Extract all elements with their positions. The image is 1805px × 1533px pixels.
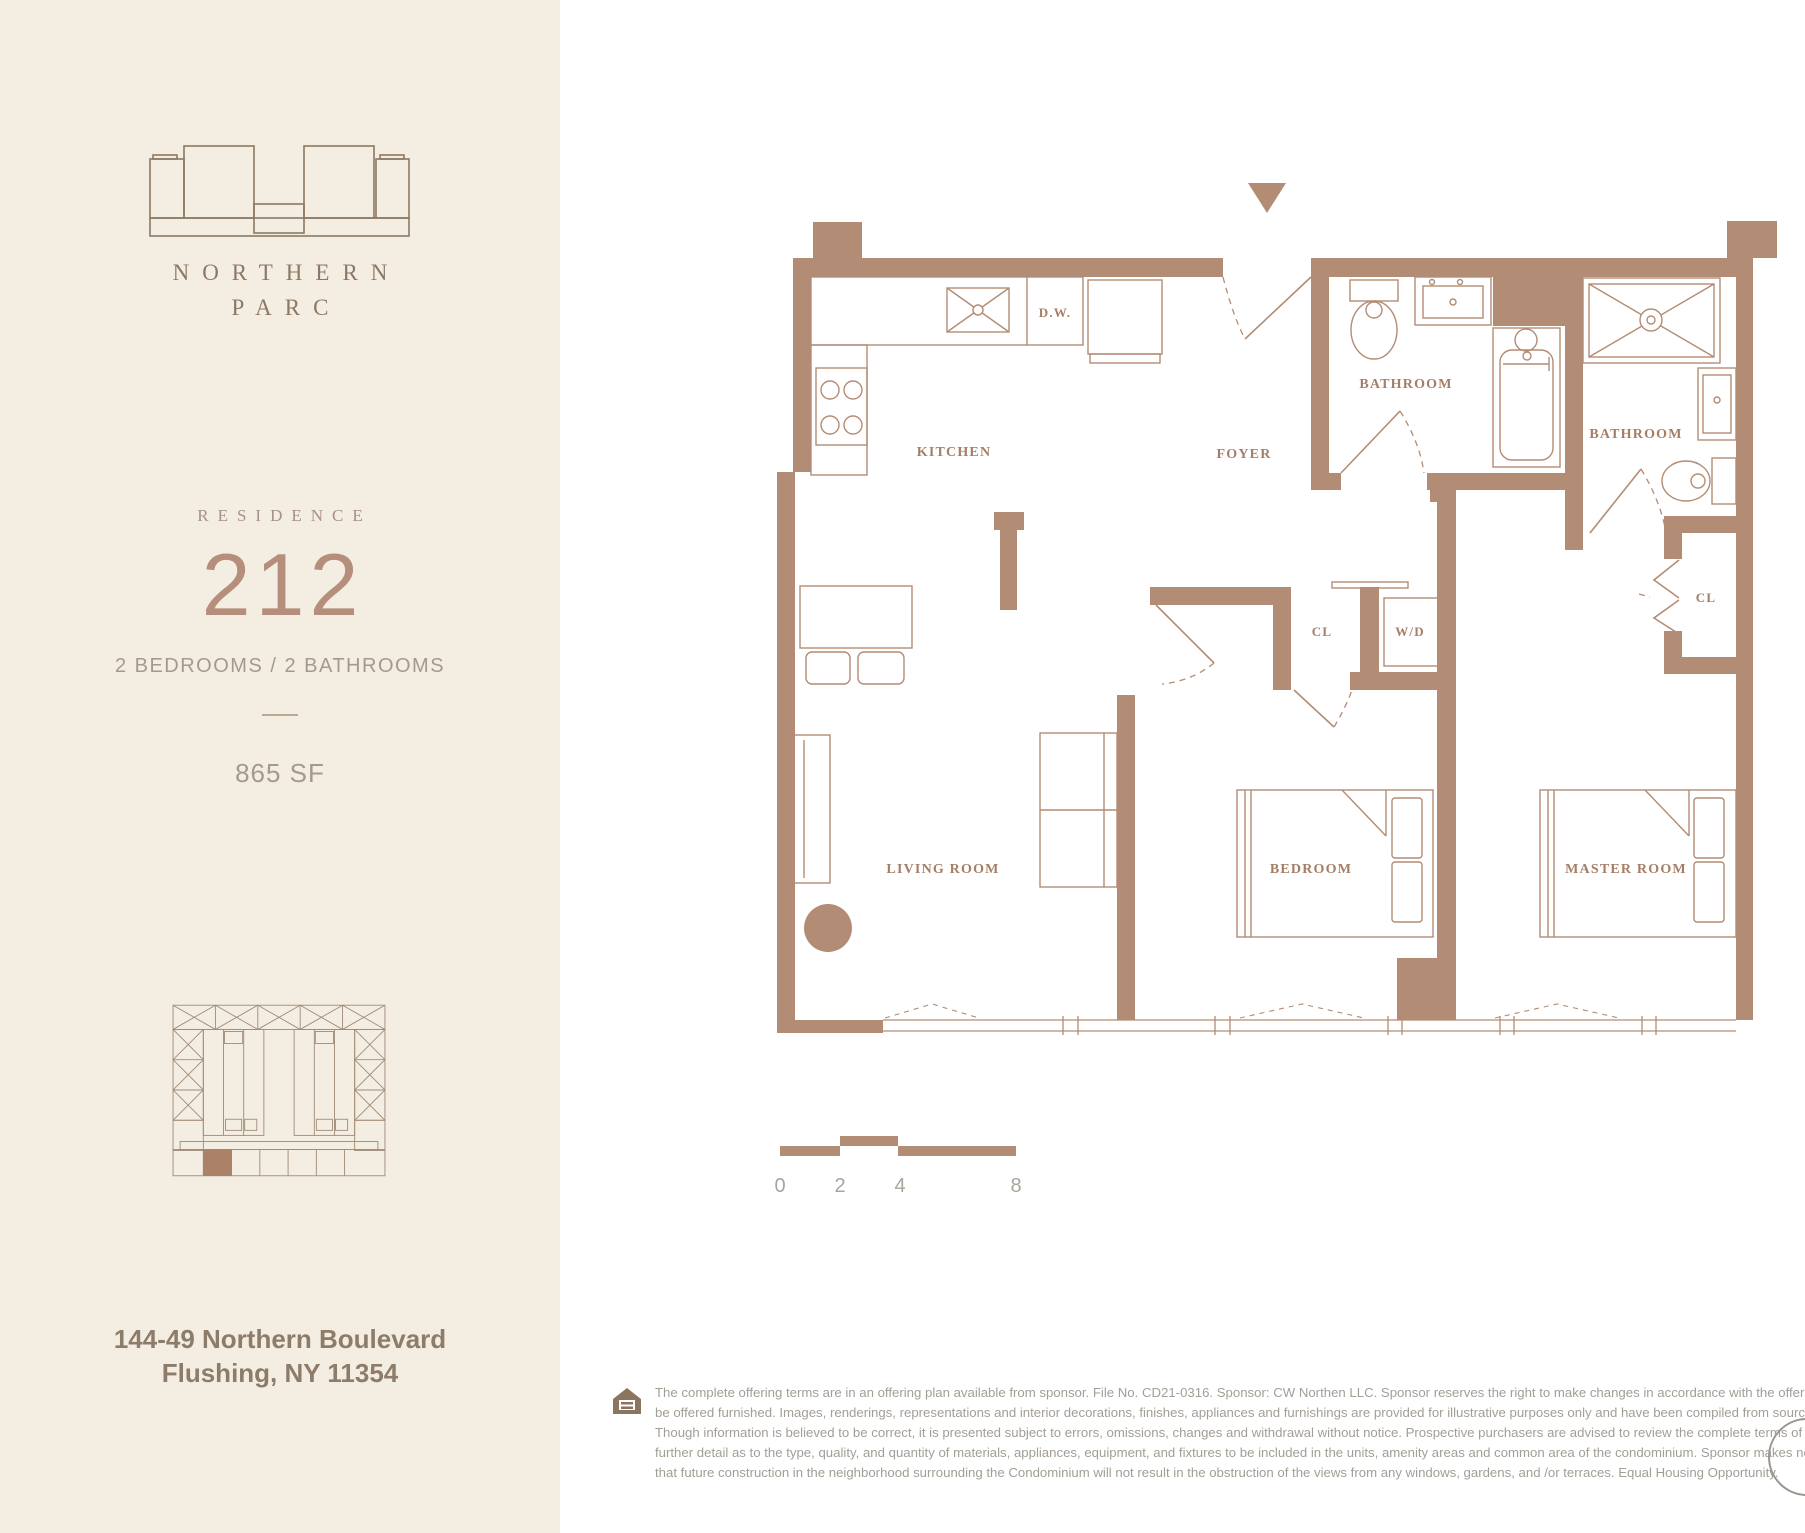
- floor-plan: KITCHEN FOYER BATHROOM BATHROOM LIVING R…: [660, 170, 1780, 1200]
- disclaimer-line: further detail as to the type, quality, …: [655, 1443, 1805, 1463]
- equal-housing-icon: [612, 1387, 642, 1415]
- scale-bar: 0 2 4 8: [774, 1136, 1021, 1197]
- column: [804, 904, 852, 952]
- disclaimer-line: Though information is believed to be cor…: [655, 1423, 1805, 1443]
- address-line2: Flushing, NY 11354: [0, 1356, 560, 1390]
- foyer-label: FOYER: [1217, 447, 1272, 462]
- floorplan-brochure-page: NORTHERN PARC RESIDENCE 212 2 BEDROOMS /…: [0, 0, 1805, 1533]
- residence-specs: 2 BEDROOMS / 2 BATHROOMS: [0, 655, 560, 678]
- offering-disclaimer: The complete offering terms are in an of…: [655, 1383, 1805, 1483]
- residence-label: RESIDENCE: [0, 506, 560, 526]
- entry-arrow-icon: [1248, 183, 1286, 213]
- bathroom2-label: BATHROOM: [1589, 427, 1682, 442]
- hall-closet-label: CL: [1312, 624, 1332, 639]
- master-room-label: MASTER ROOM: [1565, 862, 1687, 877]
- living-furniture: [794, 733, 1117, 952]
- address-line1: 144-49 Northern Boulevard: [0, 1322, 560, 1356]
- northern-parc-logo-icon: [147, 141, 413, 241]
- bathroom2-fixtures: [1583, 278, 1736, 504]
- washer-dryer-label: W/D: [1395, 624, 1425, 639]
- dishwasher-label: D.W.: [1039, 305, 1072, 320]
- disclaimer-line: The complete offering terms are in an of…: [655, 1383, 1805, 1403]
- door-swings: [1156, 277, 1679, 727]
- kitchen-label: KITCHEN: [917, 445, 992, 460]
- master-closet-label: CL: [1696, 590, 1716, 605]
- walls: [777, 221, 1777, 1033]
- scale-tick-8: 8: [1010, 1175, 1021, 1197]
- info-sidebar: NORTHERN PARC RESIDENCE 212 2 BEDROOMS /…: [0, 0, 560, 1533]
- building-address: 144-49 Northern Boulevard Flushing, NY 1…: [0, 1322, 560, 1390]
- scale-tick-2: 2: [834, 1175, 845, 1197]
- scale-tick-4: 4: [894, 1175, 905, 1197]
- brand-name-line2: PARC: [0, 295, 560, 321]
- building-key-plan: [168, 1000, 390, 1182]
- disclaimer-line: be offered furnished. Images, renderings…: [655, 1403, 1805, 1423]
- dining-set: [800, 586, 912, 684]
- brand-name-line1: NORTHERN: [0, 260, 560, 286]
- windows: [883, 1004, 1736, 1035]
- living-room-label: LIVING ROOM: [886, 862, 999, 877]
- residence-area: 865 SF: [0, 758, 560, 789]
- bathroom1-label: BATHROOM: [1359, 377, 1452, 392]
- residence-number: 212: [0, 534, 560, 636]
- disclaimer-line: that future construction in the neighbor…: [655, 1463, 1805, 1483]
- bedroom-label: BEDROOM: [1270, 862, 1352, 877]
- section-divider: [262, 714, 298, 716]
- highlighted-unit: [203, 1150, 231, 1176]
- scale-tick-0: 0: [774, 1175, 785, 1197]
